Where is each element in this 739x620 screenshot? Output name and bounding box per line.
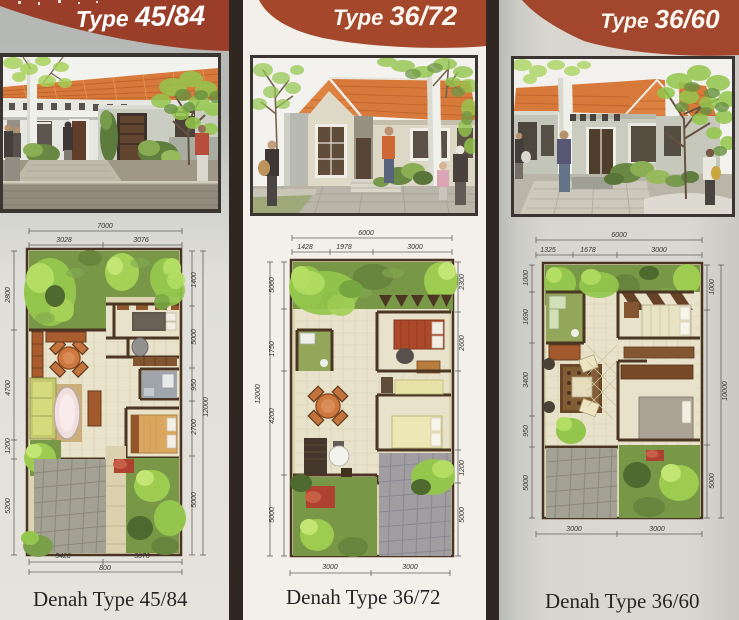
- svg-text:1000: 1000: [709, 279, 716, 295]
- svg-text:1400: 1400: [191, 272, 198, 288]
- svg-text:5200: 5200: [5, 498, 12, 514]
- svg-text:5000: 5000: [523, 475, 530, 491]
- svg-text:1000: 1000: [523, 270, 530, 286]
- svg-text:3000: 3000: [407, 244, 423, 251]
- svg-text:1200: 1200: [459, 460, 466, 476]
- svg-text:5000: 5000: [191, 329, 198, 345]
- svg-text:3000: 3000: [402, 564, 418, 571]
- svg-text:10000: 10000: [722, 381, 729, 401]
- svg-text:3400: 3400: [523, 372, 530, 388]
- svg-text:12000: 12000: [203, 397, 210, 417]
- svg-text:800: 800: [99, 565, 111, 572]
- svg-text:2800: 2800: [5, 287, 12, 304]
- svg-text:5060: 5060: [269, 277, 276, 293]
- svg-text:5428: 5428: [55, 553, 71, 560]
- svg-text:1325: 1325: [540, 247, 556, 254]
- svg-text:2300: 2300: [459, 274, 466, 291]
- svg-text:2700: 2700: [191, 419, 198, 436]
- svg-text:5000: 5000: [269, 507, 276, 523]
- svg-text:1978: 1978: [336, 244, 352, 251]
- svg-text:3000: 3000: [649, 526, 665, 533]
- svg-text:6000: 6000: [611, 232, 627, 239]
- svg-text:4700: 4700: [5, 380, 12, 396]
- svg-text:3070: 3070: [134, 553, 150, 560]
- svg-text:950: 950: [523, 425, 530, 437]
- svg-text:3028: 3028: [56, 237, 72, 244]
- svg-text:2600: 2600: [459, 335, 466, 352]
- svg-text:6000: 6000: [358, 230, 374, 237]
- svg-text:1750: 1750: [269, 341, 276, 357]
- svg-text:3000: 3000: [566, 526, 582, 533]
- svg-text:1678: 1678: [580, 247, 596, 254]
- svg-text:12000: 12000: [255, 384, 262, 404]
- svg-text:1690: 1690: [523, 309, 530, 325]
- svg-text:5000: 5000: [709, 473, 716, 489]
- svg-text:4200: 4200: [269, 408, 276, 424]
- svg-text:5000: 5000: [191, 492, 198, 508]
- svg-text:3076: 3076: [133, 237, 149, 244]
- svg-text:1200: 1200: [5, 438, 12, 454]
- svg-text:5000: 5000: [459, 507, 466, 523]
- svg-text:3000: 3000: [651, 247, 667, 254]
- svg-text:1428: 1428: [297, 244, 313, 251]
- svg-text:3000: 3000: [322, 564, 338, 571]
- svg-text:950: 950: [191, 379, 198, 391]
- svg-text:7000: 7000: [97, 223, 113, 230]
